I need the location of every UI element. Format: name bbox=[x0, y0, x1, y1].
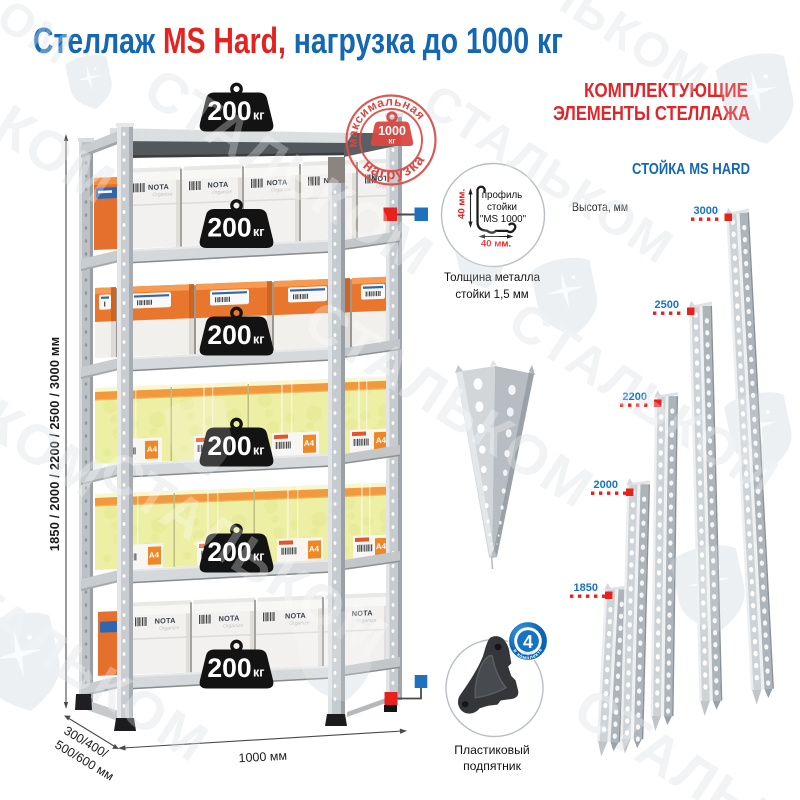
svg-text:A4: A4 bbox=[304, 439, 315, 448]
svg-text:40 мм.: 40 мм. bbox=[457, 189, 468, 219]
svg-text:Organize: Organize bbox=[212, 189, 232, 196]
svg-text:1850: 1850 bbox=[574, 582, 598, 594]
svg-text:NOTA: NOTA bbox=[148, 182, 169, 192]
svg-text:NOTA: NOTA bbox=[207, 180, 228, 190]
svg-text:подпятник: подпятник bbox=[463, 759, 522, 773]
svg-text:Organize: Organize bbox=[159, 625, 179, 632]
svg-text:СТОЙКА MS HARD: СТОЙКА MS HARD bbox=[632, 160, 750, 178]
svg-text:ЭЛЕМЕНТЫ СТЕЛЛАЖА: ЭЛЕМЕНТЫ СТЕЛЛАЖА bbox=[553, 103, 750, 125]
svg-text:штуки: штуки bbox=[521, 651, 535, 656]
svg-text:кг: кг bbox=[388, 137, 396, 146]
svg-text:стойки 1,5 мм: стойки 1,5 мм bbox=[455, 289, 528, 301]
svg-text:A4: A4 bbox=[149, 550, 160, 559]
svg-text:2000: 2000 bbox=[594, 479, 618, 491]
svg-text:NOTA: NOTA bbox=[155, 616, 176, 626]
svg-text:"MS 1000": "MS 1000" bbox=[480, 214, 527, 225]
svg-text:Стеллаж MS Hard, нагрузка до 1: Стеллаж MS Hard, нагрузка до 1000 кг bbox=[33, 20, 563, 61]
svg-text:Organize: Organize bbox=[152, 191, 172, 198]
svg-text:NOTA: NOTA bbox=[219, 613, 240, 623]
svg-text:A4: A4 bbox=[376, 542, 387, 551]
svg-text:Organize: Organize bbox=[223, 623, 243, 630]
svg-text:3000: 3000 bbox=[694, 205, 718, 217]
svg-text:A4: A4 bbox=[309, 544, 320, 553]
svg-text:стойки: стойки bbox=[487, 202, 517, 213]
svg-text:A4: A4 bbox=[376, 436, 387, 445]
svg-text:Пластиковый: Пластиковый bbox=[454, 743, 529, 757]
svg-text:1000 мм: 1000 мм bbox=[238, 749, 287, 766]
svg-text:4: 4 bbox=[523, 632, 533, 652]
svg-text:профиль: профиль bbox=[482, 190, 523, 201]
svg-text:2500: 2500 bbox=[655, 299, 679, 311]
svg-text:A4: A4 bbox=[147, 445, 158, 454]
